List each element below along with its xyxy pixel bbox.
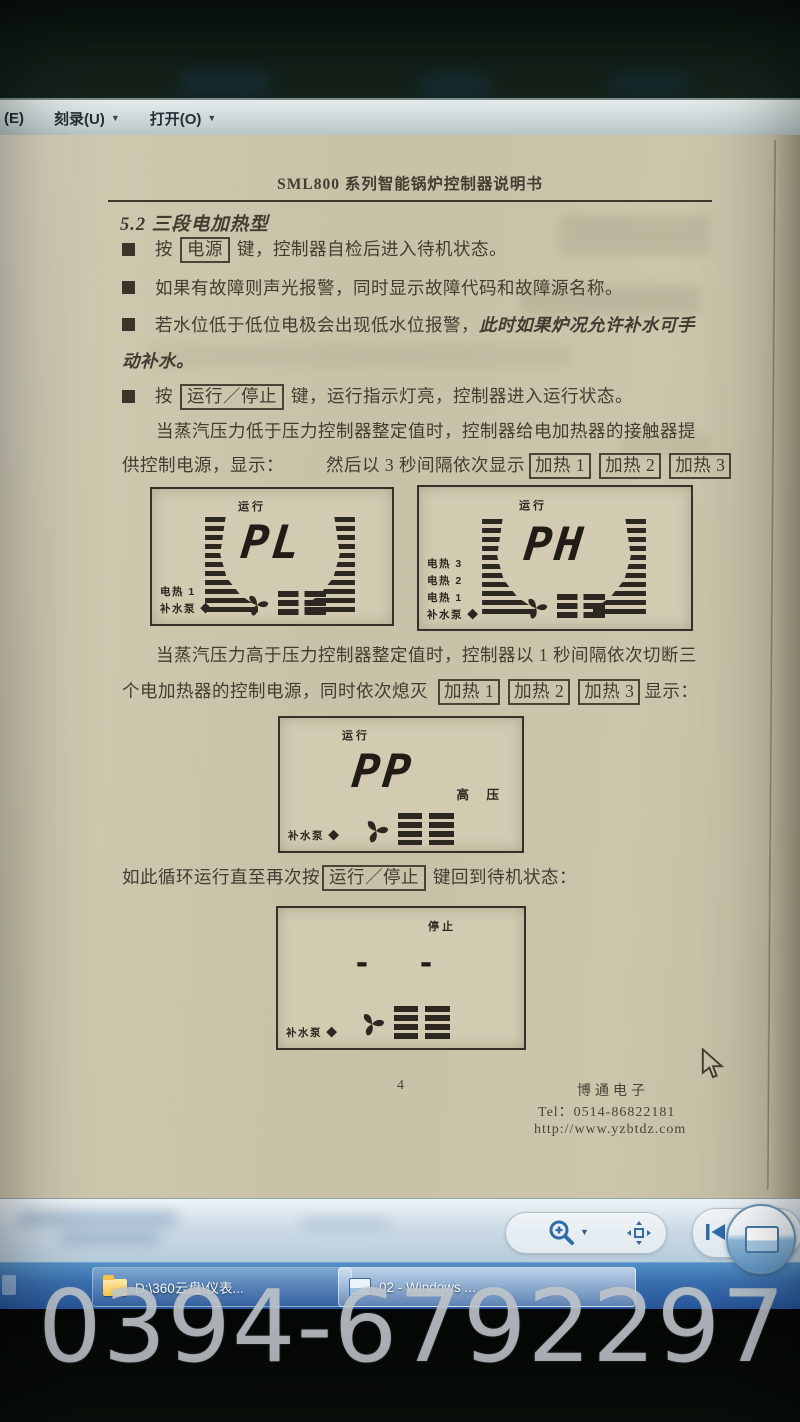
fan-icon (358, 1010, 386, 1038)
lcd-label-high-pressure: 高 压 (457, 784, 506, 803)
text-italic: 此时如果炉况允许补水可手 (479, 312, 695, 337)
text: 键，控制器自检后进入待机状态。 (237, 236, 507, 261)
lcd-panel-pl: 运行 PL 电热 1 补水泵 ◆ (150, 487, 394, 626)
lcd-side-labels: 补水泵 ◆ (286, 1025, 338, 1040)
lcd-digits: PL (149, 515, 395, 569)
text: 若水位低于低位电极会出现低水位报警， (155, 312, 479, 337)
text: 按 (155, 236, 173, 261)
text: 如此循环运行直至再次按 (122, 864, 320, 889)
heater-grate-icon (557, 594, 605, 621)
para2-line1: 当蒸汽压力高于压力控制器整定值时，控制器以 1 秒间隔依次切断三 (156, 642, 697, 667)
text: 键，运行指示灯亮，控制器进入运行状态。 (291, 383, 633, 408)
footer-company: 博通电子 (577, 1080, 649, 1100)
heat2-label: 加热 2 (508, 679, 570, 705)
lcd-label-pump: 补水泵 ◆ (288, 828, 340, 843)
lcd-panel-standby: 停止 - - 补水泵 ◆ (276, 906, 526, 1050)
lcd-label-pump: 补水泵 ◆ (427, 607, 479, 622)
para1-line2: 供控制电源，显示： 然后以 3 秒间隔依次显示 加热 1 加热 2 加热 3 (122, 452, 735, 479)
footer-tel: Tel：0514-86822181 (538, 1101, 675, 1121)
photo-of-monitor: (E) 刻录(U) ▼ 打开(O) ▼ SML800 系列智能锅炉控制器说明书 … (0, 0, 800, 1422)
doc-title: SML800 系列智能锅炉控制器说明书 (110, 172, 710, 194)
heat1-label: 加热 1 (529, 453, 591, 479)
lcd-status-stop: 停止 (428, 918, 456, 934)
footer-url: http://www.yzbtdz.com (534, 1122, 686, 1138)
bullet-line-lowwater: 若水位低于低位电极会出现低水位报警， 此时如果炉况允许补水可手 (122, 312, 695, 337)
lcd-label-heat3: 电热 3 (427, 556, 479, 571)
lcd-label-pump: 补水泵 ◆ (160, 601, 212, 616)
run-stop-key-label: 运行／停止 (322, 865, 426, 891)
power-key-label: 电源 (180, 237, 230, 263)
lcd-status-run: 运行 (238, 498, 266, 514)
page-number: 4 (397, 1078, 405, 1094)
text: 当蒸汽压力低于压力控制器整定值时，控制器给电加热器的接触器提 (156, 418, 696, 443)
text: 个电加热器的控制电源，同时依次熄灭 (122, 678, 428, 703)
lcd-label-heat1: 电热 1 (427, 590, 479, 605)
square-bullet-icon (122, 243, 135, 256)
para2-line2: 个电加热器的控制电源，同时依次熄灭 加热 1 加热 2 加热 3 显示： (122, 678, 698, 705)
bullet-line-power: 按 电源 键，控制器自检后进入待机状态。 (122, 236, 507, 263)
title-rule (108, 200, 712, 202)
lcd-label-heat1: 电热 1 (160, 584, 212, 599)
text: 键回到待机状态： (433, 864, 577, 889)
text: 如果有故障则声光报警，同时显示故障代码和故障源名称。 (155, 275, 623, 300)
text: 按 (155, 383, 173, 408)
heat1-label: 加热 1 (438, 679, 500, 705)
heater-grate-icon (394, 1006, 450, 1040)
text: 当蒸汽压力高于压力控制器整定值时，控制器以 1 秒间隔依次切断三 (156, 642, 697, 667)
lcd-panel-ph: 运行 PH 电热 3 电热 2 电热 1 补水泵 ◆ (417, 485, 693, 631)
fan-icon (362, 817, 390, 845)
section-heading: 5.2 三段电加热型 (120, 210, 269, 236)
heater-grate-icon (278, 591, 326, 618)
document-content: SML800 系列智能锅炉控制器说明书 5.2 三段电加热型 按 电源 键，控制… (0, 0, 800, 1422)
run-stop-key-label: 运行／停止 (180, 384, 284, 410)
fan-icon (244, 592, 270, 618)
lcd-label-pump: 补水泵 ◆ (286, 1025, 338, 1040)
lcd-side-labels: 补水泵 ◆ (288, 828, 340, 843)
square-bullet-icon (122, 281, 135, 294)
text: 显示： (644, 678, 698, 703)
heat2-label: 加热 2 (599, 453, 661, 479)
heat3-label: 加热 3 (669, 453, 731, 479)
lcd-side-labels: 电热 3 电热 2 电热 1 补水泵 ◆ (427, 556, 479, 622)
heater-grate-icon (398, 813, 454, 845)
bullet-line-lowwater-cont: 动补水。 (122, 348, 194, 373)
lcd-panel-pp: 运行 PP 高 压 补水泵 ◆ (278, 716, 524, 853)
heat3-label: 加热 3 (578, 679, 640, 705)
lcd-status-run: 运行 (519, 497, 547, 513)
bullet-line-fault: 如果有故障则声光报警，同时显示故障代码和故障源名称。 (122, 275, 623, 300)
para1-line1: 当蒸汽压力低于压力控制器整定值时，控制器给电加热器的接触器提 (156, 418, 696, 443)
para3-line: 如此循环运行直至再次按 运行／停止 键回到待机状态： (122, 864, 577, 891)
text: 然后以 3 秒间隔依次显示 (326, 452, 525, 477)
fan-icon (523, 595, 549, 621)
lcd-label-heat2: 电热 2 (427, 573, 479, 588)
watermark-phone-number: 0394-6792297 (38, 1268, 786, 1385)
lcd-status-run: 运行 (342, 727, 370, 743)
text: 供控制电源，显示： (122, 452, 284, 477)
lcd-digits: - - (278, 946, 524, 981)
square-bullet-icon (122, 318, 135, 331)
mouse-cursor-icon (701, 1048, 725, 1080)
lcd-side-labels: 电热 1 补水泵 ◆ (160, 584, 212, 616)
square-bullet-icon (122, 390, 135, 403)
bullet-line-runstop: 按 运行／停止 键，运行指示灯亮，控制器进入运行状态。 (122, 383, 633, 410)
text-italic: 动补水。 (122, 348, 194, 373)
